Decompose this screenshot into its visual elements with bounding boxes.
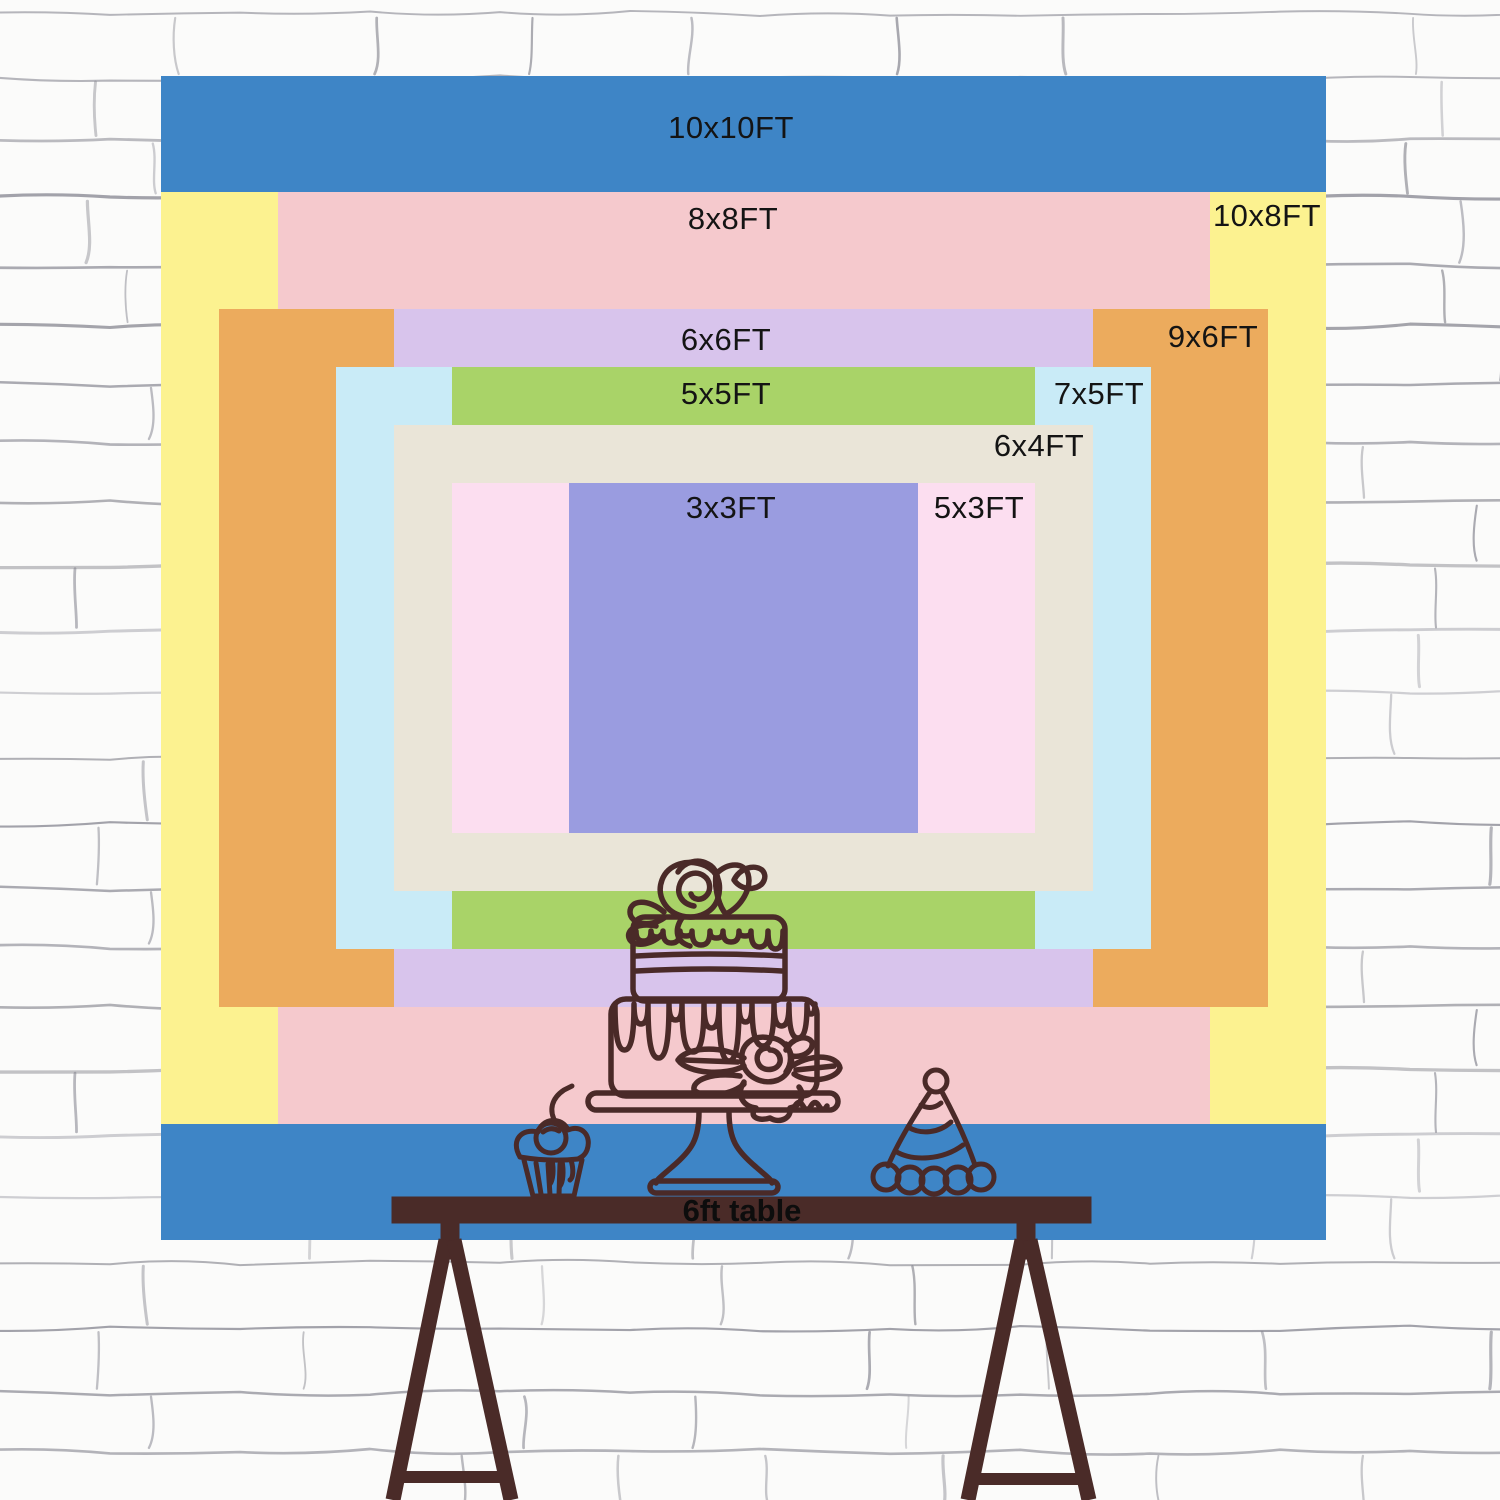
table-leg-left bbox=[393, 1221, 511, 1500]
cupcake-icon bbox=[516, 1086, 588, 1196]
table bbox=[392, 1197, 1091, 1500]
cake-icon bbox=[588, 861, 840, 1193]
backdrop-size-chart: 10x10FT10x8FT8x8FT9x6FT6x6FT7x5FT5x5FT6x… bbox=[0, 0, 1500, 1500]
table-and-decorations bbox=[0, 0, 1500, 1500]
table-size-label: 6ft table bbox=[683, 1193, 802, 1229]
table-leg-right bbox=[968, 1221, 1089, 1500]
party-hat-icon bbox=[873, 1070, 994, 1194]
